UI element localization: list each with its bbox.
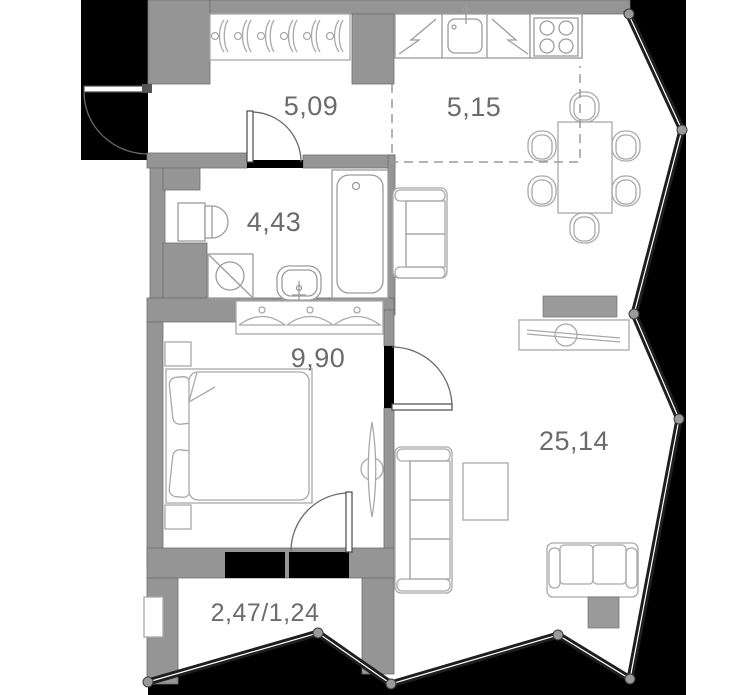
glazing-joint (674, 414, 684, 424)
bathroom-fixtures (178, 170, 388, 304)
dining-set (528, 92, 640, 243)
glazing-joint (553, 630, 563, 640)
bedroom-window (225, 552, 285, 578)
tv-stand (519, 320, 629, 350)
dining-chair (612, 131, 640, 161)
stove (530, 14, 582, 58)
wall-bedroom-right-upper (384, 310, 394, 346)
bed (166, 369, 312, 503)
glazing-joint (143, 677, 153, 687)
bedroom-doorway-opening (384, 346, 394, 408)
wall-hall-kitchen-pillar (352, 14, 394, 84)
floor-plan-canvas: 5,09 5,15 4,43 9,90 25,14 2,47/1,24 (0, 0, 749, 695)
glazing-joint (677, 125, 687, 135)
bathtub (332, 170, 388, 298)
hall-wardrobe (210, 14, 350, 60)
sofa (395, 447, 452, 593)
room-label-living: 25,14 (539, 426, 609, 456)
dining-chair (612, 176, 640, 206)
wall-bedroom-left (147, 322, 163, 568)
bathroom-door-threshold (247, 160, 303, 168)
nightstand (165, 505, 191, 529)
side-table-block (588, 597, 619, 628)
glazing-joint (313, 628, 323, 638)
bathroom-sink (277, 266, 321, 304)
wall-bedroom-right-lower (384, 408, 394, 550)
glazing-joint (386, 679, 396, 689)
tv-backboard (543, 296, 617, 317)
wall-hall-bath-right (303, 155, 395, 168)
room-label-hallway: 5,09 (284, 91, 339, 121)
wall-bath-left-top (163, 168, 200, 190)
armchair (393, 188, 447, 278)
room-label-balcony: 2,47/1,24 (211, 599, 320, 627)
balcony-door-opening (289, 552, 349, 578)
door-hinge (142, 84, 152, 93)
coffee-table (463, 463, 508, 520)
washing-machine (208, 254, 253, 298)
room-label-bedroom: 9,90 (291, 343, 346, 373)
room-label-kitchen: 5,15 (447, 92, 502, 122)
dining-chair (528, 131, 556, 161)
mirror (361, 422, 383, 517)
wall-balcony-right (362, 578, 394, 674)
wall-top (210, 0, 630, 14)
floor-plan: 5,09 5,15 4,43 9,90 25,14 2,47/1,24 (0, 0, 749, 695)
dining-chair (570, 92, 599, 122)
outside-area-entry (81, 0, 148, 160)
dining-table (558, 122, 612, 213)
balcony-pilaster (144, 597, 163, 637)
loveseat (547, 543, 638, 597)
glazing-joint (624, 9, 634, 19)
wall-bath-bedroom-left (147, 298, 238, 322)
toilet (178, 203, 228, 241)
dining-chair (570, 213, 599, 243)
dining-chair (528, 176, 556, 206)
glazing-joint (625, 674, 635, 684)
glazing-joint (629, 309, 639, 319)
wall-hall-bath-left (147, 153, 247, 168)
wall-entry-pillar (148, 0, 210, 84)
bedroom-wardrobe (236, 301, 383, 334)
room-label-bathroom: 4,43 (247, 207, 302, 237)
nightstand (165, 342, 191, 366)
bedroom-door (392, 347, 452, 410)
wall-bath-left-bottom (163, 243, 207, 298)
